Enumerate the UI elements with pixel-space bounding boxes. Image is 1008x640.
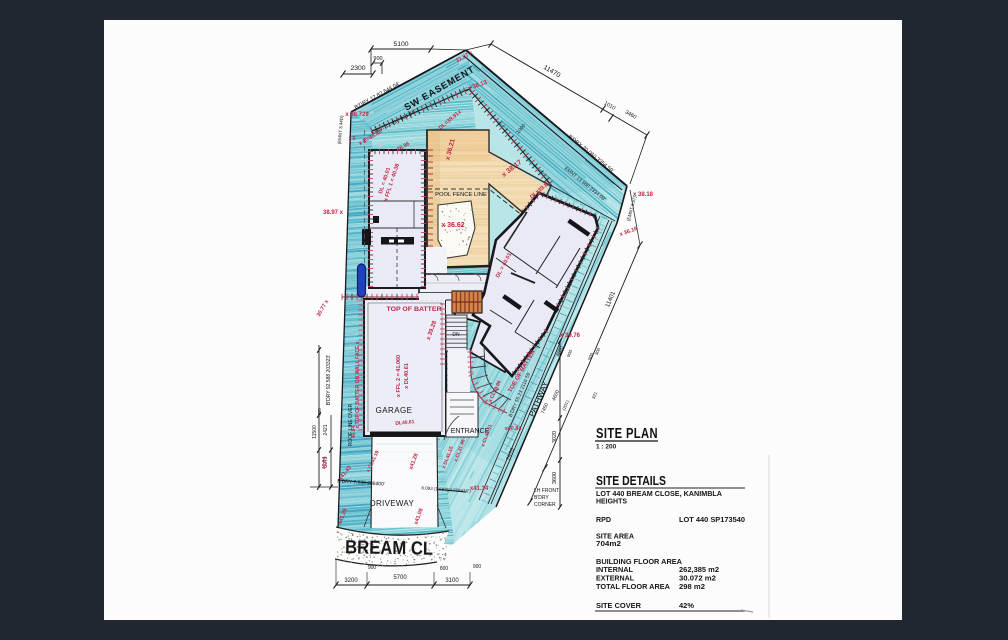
svg-text:B'DRY: B'DRY xyxy=(534,495,549,501)
svg-text:B'DRY 92.588 203323': B'DRY 92.588 203323' xyxy=(326,355,332,405)
svg-text:BREAM CL: BREAM CL xyxy=(345,537,434,560)
svg-text:1 : 200: 1 : 200 xyxy=(596,444,617,451)
svg-text:2300: 2300 xyxy=(350,65,365,72)
svg-text:5100: 5100 xyxy=(393,41,408,48)
svg-text:x TOP OF BATTER ON WALL FACE x: x TOP OF BATTER ON WALL FACE x xyxy=(355,341,361,428)
svg-text:ROOF LINE OVER: ROOF LINE OVER xyxy=(348,403,354,446)
svg-text:TOTAL FLOOR AREA: TOTAL FLOOR AREA xyxy=(596,582,671,591)
svg-text:DRIVEWAY: DRIVEWAY xyxy=(370,499,415,508)
svg-text:x DL40.61: x DL40.61 xyxy=(404,363,410,389)
svg-text:x 39.76: x 39.76 xyxy=(560,333,581,339)
svg-text:x 36.729: x 36.729 xyxy=(345,112,369,118)
svg-text:900: 900 xyxy=(373,56,382,62)
svg-text:GARAGE: GARAGE xyxy=(376,406,413,415)
svg-text:LH FRONT: LH FRONT xyxy=(534,488,559,494)
svg-text:42%: 42% xyxy=(679,601,694,610)
svg-text:3020: 3020 xyxy=(552,431,558,443)
svg-text:SITE COVER: SITE COVER xyxy=(596,601,642,610)
svg-text:RPD: RPD xyxy=(596,515,612,524)
svg-text:x FFL 2 = 41.060: x FFL 2 = 41.060 xyxy=(396,355,402,397)
svg-text:5700: 5700 xyxy=(393,575,407,581)
svg-text:x41.34: x41.34 xyxy=(470,486,489,492)
svg-text:900: 900 xyxy=(473,564,482,570)
svg-text:704m2: 704m2 xyxy=(596,539,621,548)
svg-text:POOL FENCE LINE: POOL FENCE LINE xyxy=(435,192,487,198)
svg-text:900: 900 xyxy=(317,408,322,416)
svg-text:TOP OF BATTER: TOP OF BATTER xyxy=(387,306,442,313)
svg-text:x 36.62: x 36.62 xyxy=(441,222,464,229)
svg-text:40.64: 40.64 xyxy=(322,457,328,470)
svg-text:2421: 2421 xyxy=(323,424,329,435)
svg-text:CORNER: CORNER xyxy=(534,502,556,508)
svg-text:DN: DN xyxy=(452,332,460,338)
svg-text:x 38.18: x 38.18 xyxy=(633,192,654,198)
svg-text:11500: 11500 xyxy=(312,425,318,439)
svg-text:900: 900 xyxy=(368,565,377,571)
svg-text:x40.84: x40.84 xyxy=(505,426,523,432)
svg-text:LOT 440 SP173540: LOT 440 SP173540 xyxy=(679,515,745,524)
svg-text:SITE PLAN: SITE PLAN xyxy=(596,426,658,442)
svg-text:HEIGHTS: HEIGHTS xyxy=(596,497,627,506)
svg-text:800: 800 xyxy=(440,566,449,572)
svg-text:SITE DETAILS: SITE DETAILS xyxy=(596,473,666,488)
svg-text:3100: 3100 xyxy=(445,578,459,584)
svg-text:3600: 3600 xyxy=(552,472,558,484)
svg-text:38.97 x: 38.97 x xyxy=(323,210,344,216)
svg-text:298 m2: 298 m2 xyxy=(679,582,705,591)
svg-text:3200: 3200 xyxy=(344,578,358,584)
svg-text:x 5: x 5 xyxy=(349,136,356,142)
